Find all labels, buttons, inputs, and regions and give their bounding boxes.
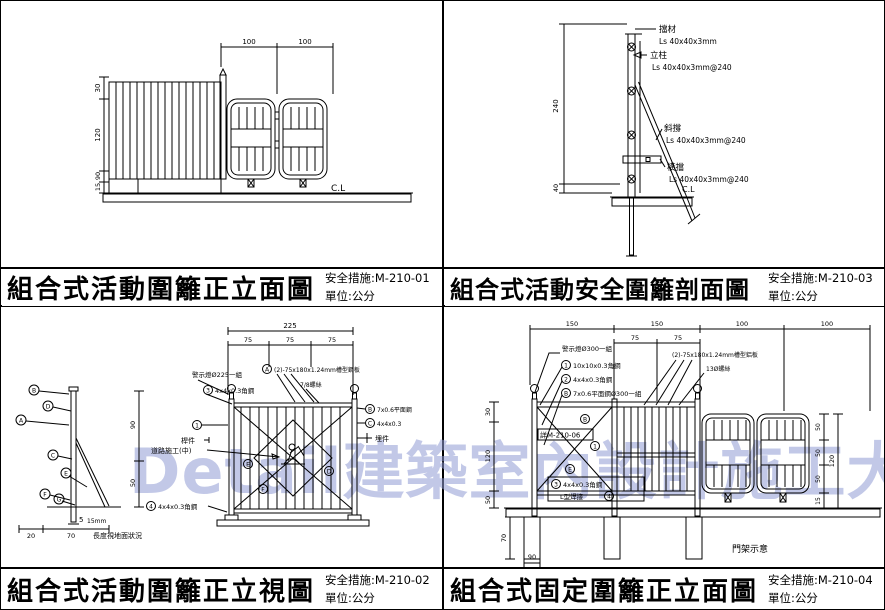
dim-l2: 120 (484, 450, 492, 462)
dim-v2: 40 (552, 184, 560, 192)
dim-sv2: 50 (129, 479, 137, 487)
dim-top-2: 100 (298, 38, 311, 46)
corrugated-panel (109, 82, 221, 179)
titlebar-tl: 組合式活動圍籬正立面圖 安全措施:M-210-01 單位:公分 (2, 269, 442, 306)
centerline-label: C.L (682, 185, 695, 194)
drawing-fence-section: 240 40 (444, 1, 885, 267)
dim-s1: 75 (631, 334, 639, 342)
label-gate-note: 門架示意 (732, 543, 768, 555)
drawing-fence-front-view: B D A C E F G 90 50 20 70 5 15mm 長度視地面狀況… (1, 307, 443, 567)
marker-s3: A (19, 418, 24, 425)
marker-s7: G (57, 497, 62, 504)
dim-r3: 50 (815, 475, 822, 483)
label-rail-spec: Ls 40x40x3mm@240 (669, 175, 749, 184)
gate-panel-2 (279, 99, 327, 187)
marker-s4: C (51, 453, 55, 460)
front-view-dimensions: 225 75 75 75 (228, 322, 353, 395)
dim-h2: 120 (94, 128, 102, 141)
unit-tl: 單位:公分 (325, 288, 439, 305)
panel-markers: E D F (244, 460, 334, 494)
label-channel-plate: (2)-75x180x1.24mm槽型鋼板 (274, 366, 360, 374)
dim-sb4: 15mm (87, 518, 106, 525)
marker-1: 1 (564, 363, 568, 370)
marker-p2: D (327, 469, 332, 476)
label-angle3: 4x4x0.3角鋼 (215, 386, 255, 395)
marker-B: B (564, 391, 568, 398)
titlebar-br: 組合式固定圍籬正立面圖 安全措施:M-210-04 單位:公分 (445, 571, 885, 608)
dim-s3: 75 (328, 336, 336, 344)
unit-br: 單位:公分 (768, 590, 882, 607)
marker-p3: F (261, 487, 265, 494)
marker-3: 3 (206, 388, 210, 395)
dim-h1: 30 (94, 84, 102, 93)
label-warning-light: 警示燈Ø225一組 (192, 370, 243, 379)
marker-4: 4 (607, 494, 611, 501)
title-bl: 組合式活動圍籬正立視圖 (2, 571, 315, 608)
marker-B: B (368, 407, 372, 414)
safety-code-tl: 安全措施:M-210-01 (325, 270, 439, 287)
title-tr: 組合式活動安全圍籬剖面圖 (445, 270, 750, 305)
label-warning-light: 警示燈Ø300一組 (562, 344, 613, 353)
meta-bl: 安全措施:M-210-02 單位:公分 (325, 572, 442, 607)
dim-l3: 50 (484, 496, 492, 504)
dim-b1: 90 (528, 553, 536, 561)
label-angle2: 4x4x0.3角鋼 (573, 375, 613, 384)
gate-hinges (275, 112, 279, 148)
centerline-label: C.L (331, 184, 345, 194)
dim-h3: 90 (94, 172, 102, 180)
gate-panel-1 (227, 99, 275, 187)
marker-4: 4 (149, 504, 153, 511)
title-br: 組合式固定圍籬正立面圖 (445, 571, 758, 608)
safety-code-br: 安全措施:M-210-04 (768, 572, 882, 589)
label-screw: 7/8螺絲 (300, 381, 322, 389)
drawing-fixed-fence-elevation: 150 150 100 100 75 75 (444, 307, 885, 567)
left-dimension-chain: 30 120 90 15 (94, 77, 109, 193)
safety-code-bl: 安全措施:M-210-02 (325, 572, 439, 589)
drawing-fence-front-elevation: 100 100 30 120 90 15 (1, 1, 443, 267)
dim-r1: 50 (815, 423, 822, 431)
label-post-spec: Ls 40x40x3mm@240 (652, 63, 732, 72)
dim-top-1: 100 (242, 38, 255, 46)
vertical-dimension-chain: 240 40 (552, 24, 627, 193)
label-flat-steel: 7x0.6平面鋼 (377, 406, 412, 414)
dim-r4: 120 (828, 455, 836, 467)
titlebar-tr: 組合式活動安全圍籬剖面圖 安全措施:M-210-03 單位:公分 (445, 269, 885, 306)
dim-total: 225 (283, 322, 296, 330)
concrete-base (109, 179, 221, 193)
ground-line (101, 193, 413, 202)
ground-line (610, 197, 694, 206)
dim-l4: 70 (500, 534, 508, 542)
label-angle3: 4x4x0.3角鋼 (563, 480, 603, 489)
marker-1: 1 (195, 423, 199, 430)
marker-s2: D (46, 404, 51, 411)
label-brace-spec: Ls 40x40x3mm@240 (666, 136, 746, 145)
bottom-rail-bracket (623, 156, 661, 163)
label-embed: 埋件 (375, 434, 389, 443)
label-screw: 13Ø螺絲 (706, 365, 730, 373)
dim-r2: 50 (815, 449, 822, 457)
meta-br: 安全措施:M-210-04 單位:公分 (768, 572, 885, 607)
dim-sb1: 20 (27, 532, 35, 540)
label-weld: L型焊接 (560, 492, 584, 501)
label-angleC: 4x4x0.3 (377, 421, 401, 428)
marker-p3: E (568, 467, 572, 474)
post-section (625, 34, 642, 256)
title-tl: 組合式活動圍籬正立面圖 (2, 269, 315, 306)
gate-panel-2 (757, 414, 809, 502)
titlebar-bl: 組合式活動圍籬正立視圖 安全措施:M-210-02 單位:公分 (2, 571, 442, 608)
marker-C: C (368, 421, 372, 428)
unit-tr: 單位:公分 (768, 288, 882, 305)
fence-structure (531, 385, 702, 517)
annotation-cap: 擋材 Ls 40x40x3mm (635, 24, 717, 46)
label-angle1: 10x10x0.3角鋼 (573, 361, 621, 370)
marker-s6: F (43, 492, 47, 499)
dim-s2: 75 (286, 336, 294, 344)
dim-sb2: 70 (67, 532, 75, 540)
diagonal-brace (635, 82, 700, 224)
marker-2: 2 (564, 377, 568, 384)
marker-p1: B (583, 417, 587, 424)
annotation-rail: 橫擋 Ls 40x40x3mm@240 (660, 159, 749, 184)
side-detail: B D A C E F G 90 50 20 70 5 15mm 長度視地面狀況 (16, 385, 144, 540)
marker-s5: E (64, 471, 68, 478)
title-separator-bottom (1, 567, 885, 569)
dim-t2: 150 (651, 320, 663, 328)
panel-frame (217, 399, 369, 526)
label-member: 桿件 (181, 436, 195, 445)
label-rail: 橫擋 (667, 162, 685, 173)
dim-l1: 30 (484, 408, 492, 416)
dim-t1: 150 (566, 320, 578, 328)
dim-v1: 240 (552, 99, 560, 112)
dim-s2: 75 (674, 334, 682, 342)
annotations: 警示燈Ø225一組 3 4x4x0.3角鋼 A (2)-75x180x1.24m… (147, 365, 412, 513)
dim-h4: 15 (94, 183, 102, 191)
dim-sv1: 90 (129, 421, 137, 429)
unit-bl: 單位:公分 (325, 590, 439, 607)
gate-panel-1 (702, 414, 754, 502)
dim-t4: 100 (821, 320, 833, 328)
safety-code-tr: 安全措施:M-210-03 (768, 270, 882, 287)
marker-s1: B (32, 388, 36, 395)
marker-3: 3 (554, 482, 558, 489)
label-channel-plate: (2)-75x180x1.24mm槽型鋁板 (672, 351, 758, 359)
marker-p2: 1 (593, 444, 597, 451)
meta-tl: 安全措施:M-210-01 單位:公分 (325, 270, 442, 305)
label-angle4: 4x4x0.3角鋼 (158, 502, 198, 511)
marker-p1: E (246, 462, 250, 469)
right-dimension-chain: 50 50 50 15 120 (815, 414, 843, 508)
label-cap: 擋材 (659, 24, 677, 35)
dim-sb3: 5 (79, 516, 83, 524)
dim-t3: 100 (736, 320, 748, 328)
label-road-sign: 道路施工(中) (151, 446, 192, 455)
label-post: 立柱 (650, 50, 668, 61)
annotation-brace: 斜撐 Ls 40x40x3mm@240 (656, 123, 746, 145)
ground-and-footings (504, 508, 882, 559)
top-dimension-chain: 100 100 (221, 38, 333, 94)
label-flat-steel: 7x0.6平面鋼Ø300一組 (573, 389, 642, 398)
dim-s1: 75 (244, 336, 252, 344)
label-brace: 斜撐 (664, 123, 682, 134)
cad-sheet: Detail建築室內設計施工大樣圖庫 100 100 (0, 0, 885, 610)
annotation-post: 立柱 Ls 40x40x3mm@240 (634, 50, 732, 72)
label-cap-spec: Ls 40x40x3mm (659, 37, 717, 46)
meta-tr: 安全措施:M-210-03 單位:公分 (768, 270, 885, 305)
dim-r5: 15 (815, 497, 822, 505)
ground-note: 長度視地面狀況 (93, 531, 142, 540)
